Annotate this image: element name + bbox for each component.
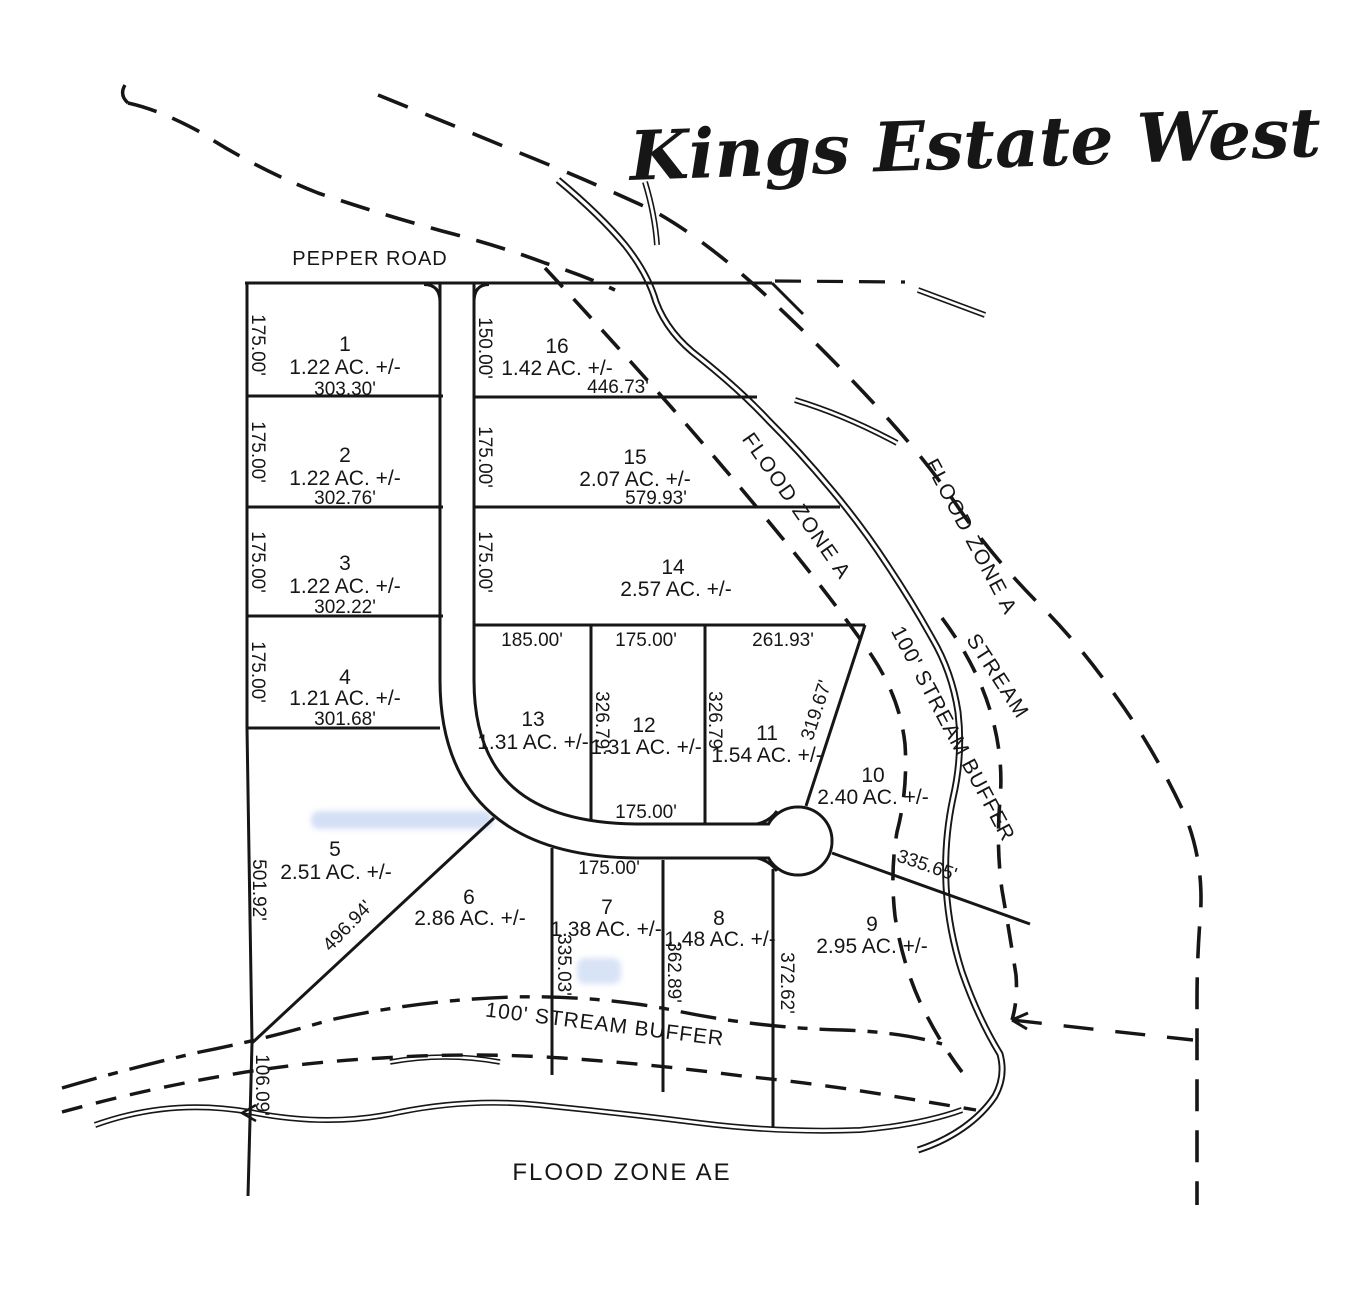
dim-lot14-west: 175.00' bbox=[474, 531, 495, 593]
dim-lot15-west: 175.00' bbox=[474, 426, 495, 488]
stream-accent-1 bbox=[795, 400, 897, 443]
dim-lot8-west: 362.89' bbox=[663, 941, 684, 1003]
lot-14-area: 2.57 AC. +/- bbox=[620, 578, 731, 601]
pepper-road-label: PEPPER ROAD bbox=[292, 248, 447, 270]
dim-lot5-diagonal: 496.94' bbox=[319, 897, 377, 956]
dim-lot12-north: 175.00' bbox=[615, 630, 677, 651]
lot-6-area: 2.86 AC. +/- bbox=[414, 907, 525, 930]
lot-2-area: 1.22 AC. +/- bbox=[289, 467, 400, 490]
lot-10-number: 10 bbox=[861, 764, 884, 787]
lot-11-number: 11 bbox=[756, 722, 778, 745]
dim-lot8-east: 372.62' bbox=[776, 952, 797, 1014]
lot-16-number: 16 bbox=[545, 335, 568, 358]
dim-lot1-west: 175.00' bbox=[247, 314, 268, 376]
lot-3-area: 1.22 AC. +/- bbox=[289, 575, 400, 598]
dim-lot12-west: 326.79' bbox=[591, 691, 612, 753]
stream-buffer-south-label: 100' STREAM BUFFER bbox=[484, 998, 725, 1050]
stream-channel bbox=[95, 180, 1002, 1150]
dim-boundary-south: 106.09' bbox=[251, 1054, 272, 1116]
lot-15-number: 15 bbox=[623, 446, 646, 469]
plat-title: Kings Estate West bbox=[626, 93, 1322, 197]
lot-14-number: 14 bbox=[661, 556, 685, 579]
lot-13-area: 1.31 AC. +/- bbox=[477, 731, 588, 754]
lot-9-area: 2.95 AC. +/- bbox=[816, 935, 927, 958]
dim-lot11-north: 261.93' bbox=[752, 630, 814, 651]
stream-dash-hook bbox=[123, 85, 128, 103]
plat-map: Kings Estate West PEPPER ROAD 1 1.22 AC.… bbox=[0, 0, 1354, 1294]
lot-2-number: 2 bbox=[339, 444, 351, 467]
lot-5-area: 2.51 AC. +/- bbox=[280, 861, 391, 884]
dim-lot11-west: 326.79' bbox=[704, 691, 725, 753]
dim-lot7-north: 175.00' bbox=[578, 858, 640, 879]
dim-lot4-south: 301.68' bbox=[314, 709, 376, 730]
lot-5-number: 5 bbox=[329, 838, 341, 861]
lot-12-number: 12 bbox=[632, 714, 655, 737]
pepper-road-dashed-extension bbox=[775, 281, 905, 282]
dim-lot3-west: 175.00' bbox=[247, 531, 268, 593]
lot-3-number: 3 bbox=[339, 552, 351, 575]
dim-lot1-south: 303.30' bbox=[314, 379, 376, 400]
plat-page: Kings Estate West PEPPER ROAD 1 1.22 AC.… bbox=[0, 0, 1354, 1294]
dim-lot2-south: 302.76' bbox=[314, 488, 376, 509]
flood-zone-a-east-label: FLOOD ZONE A bbox=[920, 455, 1022, 619]
flood-connector-line bbox=[1012, 1020, 1193, 1040]
lot-11-area: 1.54 AC. +/- bbox=[711, 744, 822, 767]
lot-4-number: 4 bbox=[339, 666, 351, 689]
dim-lot15-south: 579.93' bbox=[625, 488, 687, 509]
labels: Kings Estate West PEPPER ROAD 1 1.22 AC.… bbox=[247, 93, 1322, 1186]
stream-label: STREAM bbox=[962, 630, 1034, 723]
lot-9-number: 9 bbox=[866, 913, 878, 936]
road-mouth-fillet-west bbox=[424, 285, 440, 303]
lot-7-number: 7 bbox=[601, 896, 613, 919]
dim-lot16-west: 150.00' bbox=[474, 317, 495, 379]
dim-lot2-west: 175.00' bbox=[247, 421, 268, 483]
dim-lot4-west: 175.00' bbox=[247, 641, 268, 703]
dim-lot16-south: 446.73' bbox=[587, 377, 649, 398]
dim-lot13-north: 185.00' bbox=[501, 630, 563, 651]
lot5-lot6-line bbox=[252, 818, 494, 1043]
lot-13-number: 13 bbox=[521, 708, 544, 731]
south-channel-outer bbox=[95, 1103, 962, 1131]
stream-accent-2-inner bbox=[918, 290, 985, 315]
lot-10-area: 2.40 AC. +/- bbox=[817, 786, 928, 809]
lot-8-number: 8 bbox=[713, 907, 725, 930]
road-mouth-fillet-east bbox=[474, 285, 489, 303]
dim-lot12-south: 175.00' bbox=[615, 802, 677, 823]
northeast-boundary-stub bbox=[772, 283, 803, 314]
lot-4-area: 1.21 AC. +/- bbox=[289, 687, 400, 710]
flood-zone-ae-label: FLOOD ZONE AE bbox=[512, 1159, 731, 1186]
dim-lot5-west: 501.92' bbox=[248, 859, 269, 921]
lot-1-area: 1.22 AC. +/- bbox=[289, 356, 400, 379]
dim-lot7-west: 335.03' bbox=[553, 934, 574, 996]
lot-6-number: 6 bbox=[463, 886, 475, 909]
dim-lot3-south: 302.22' bbox=[314, 597, 376, 618]
lot-1-number: 1 bbox=[339, 333, 351, 356]
